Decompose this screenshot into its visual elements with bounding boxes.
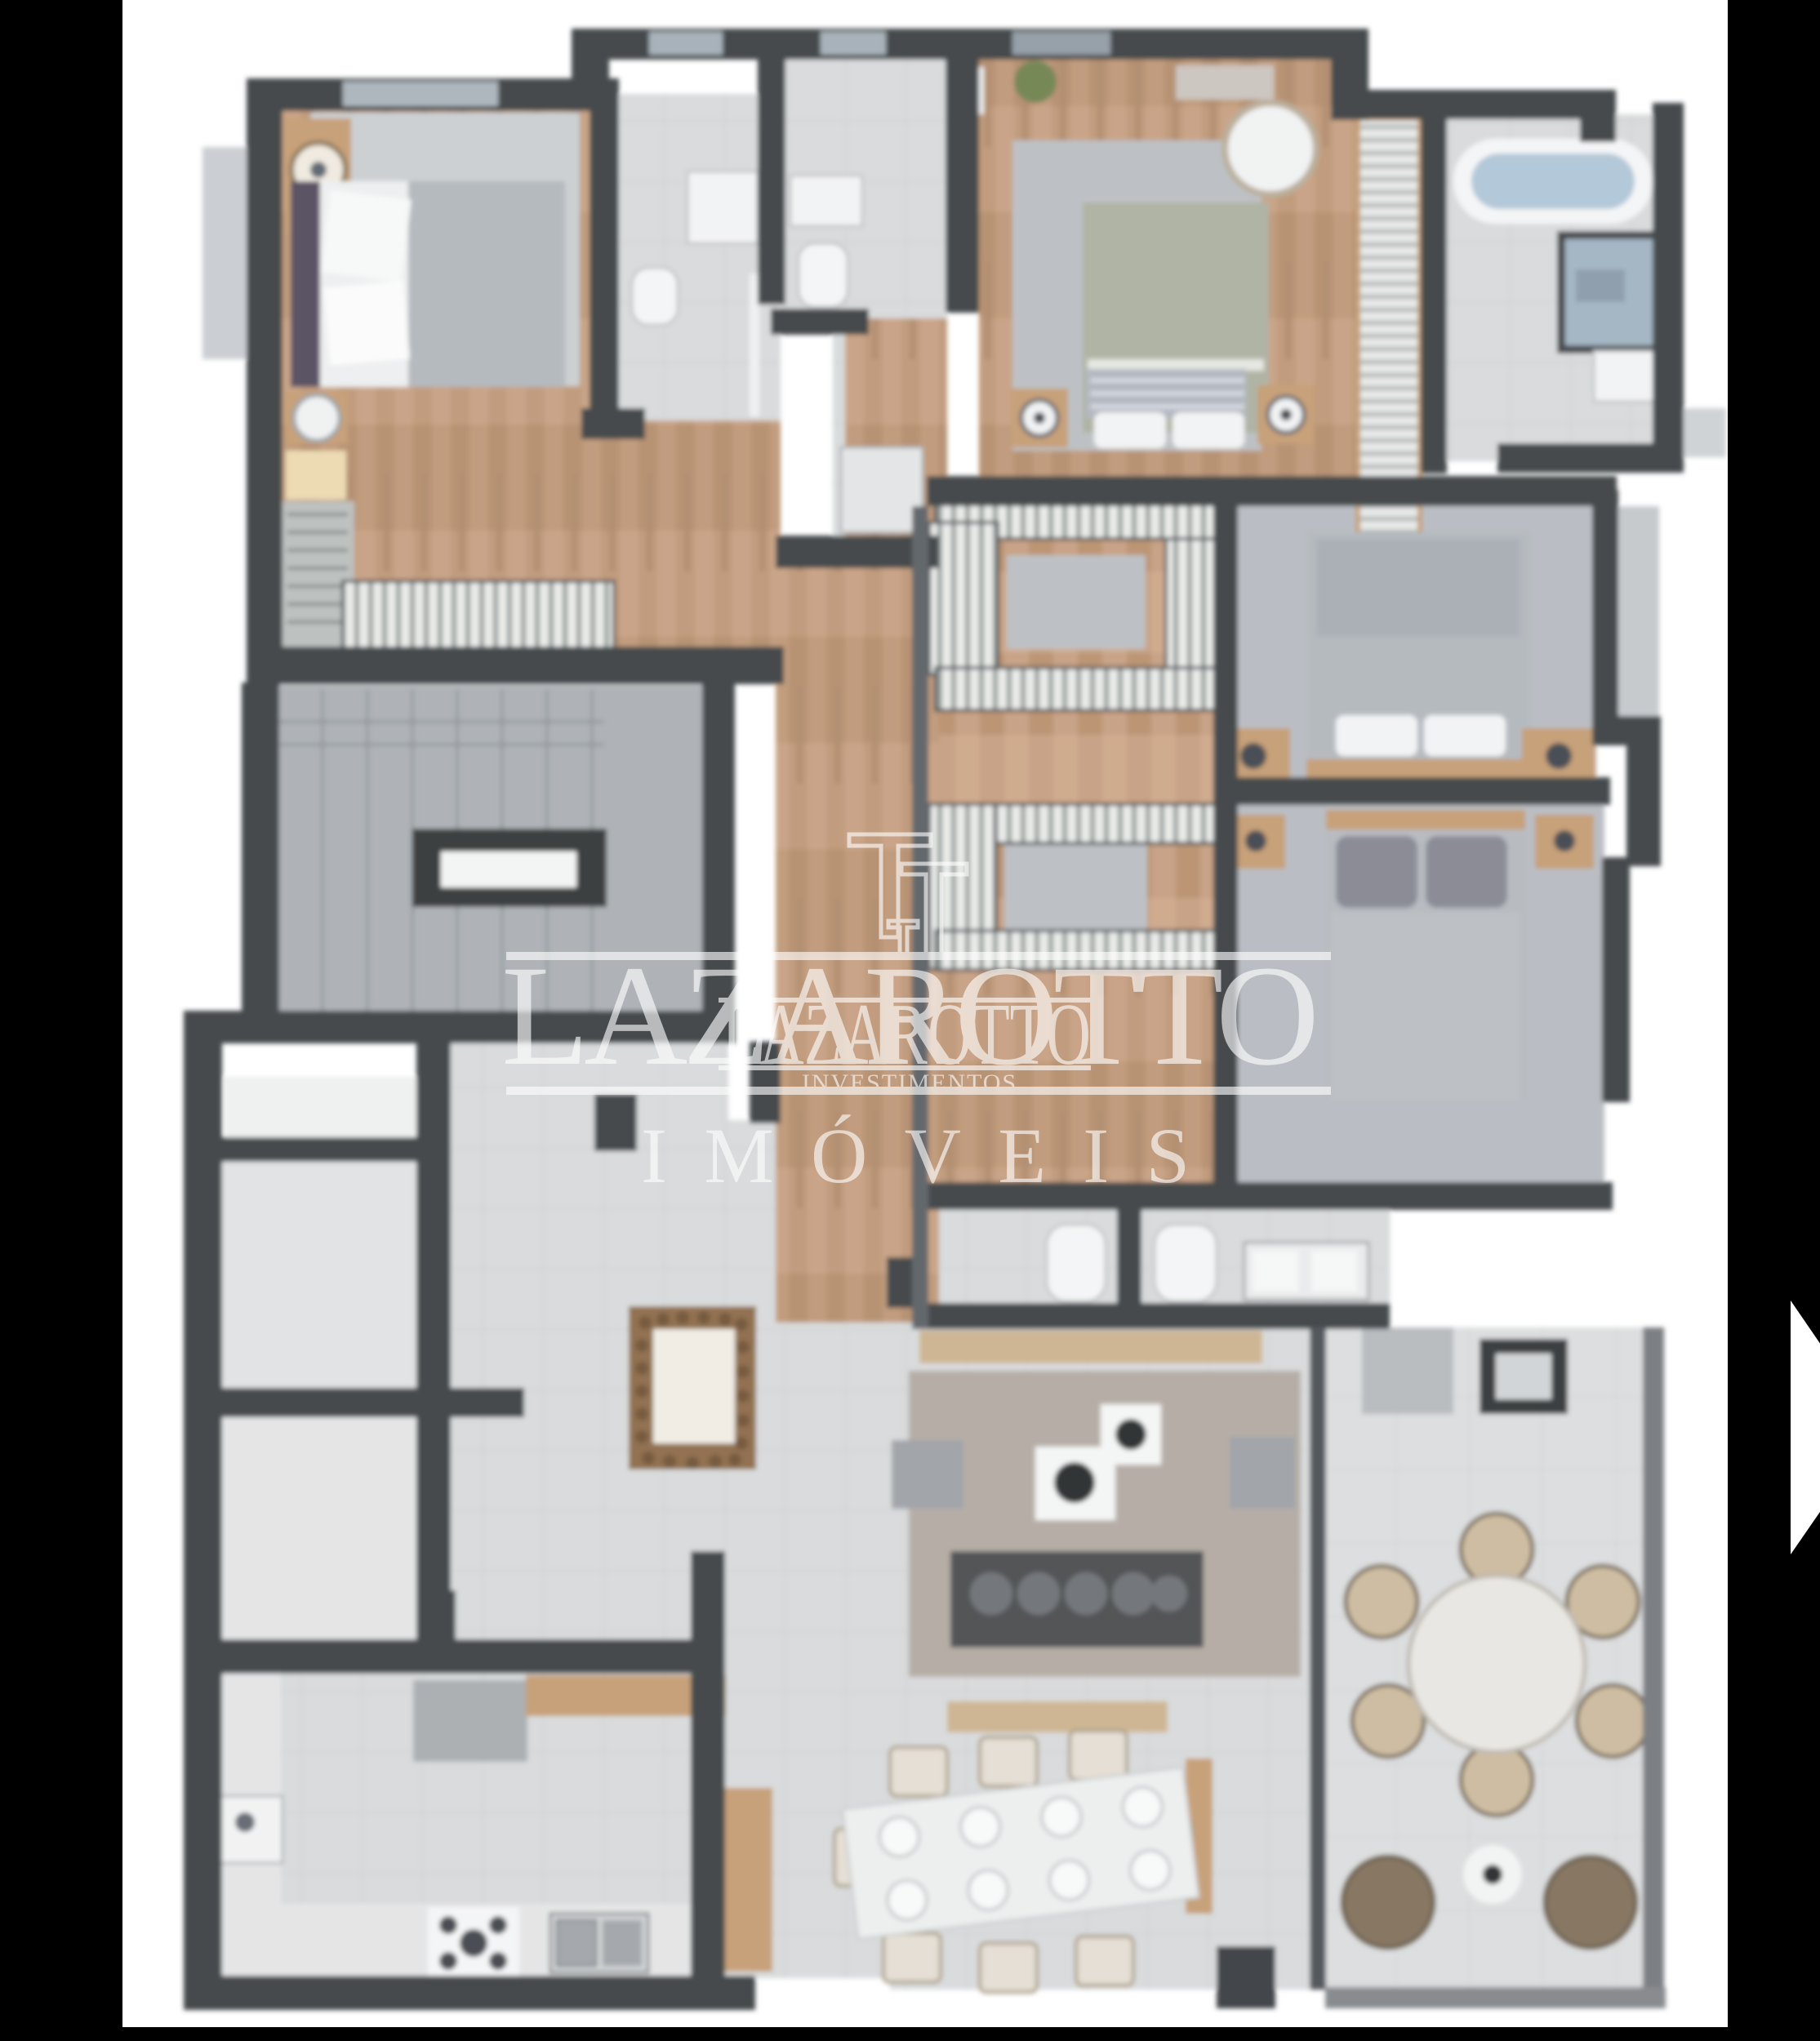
svg-text:IMÓVEIS: IMÓVEIS: [641, 1112, 1190, 1199]
svg-text:INVESTIMENTOS: INVESTIMENTOS: [802, 1069, 1016, 1096]
